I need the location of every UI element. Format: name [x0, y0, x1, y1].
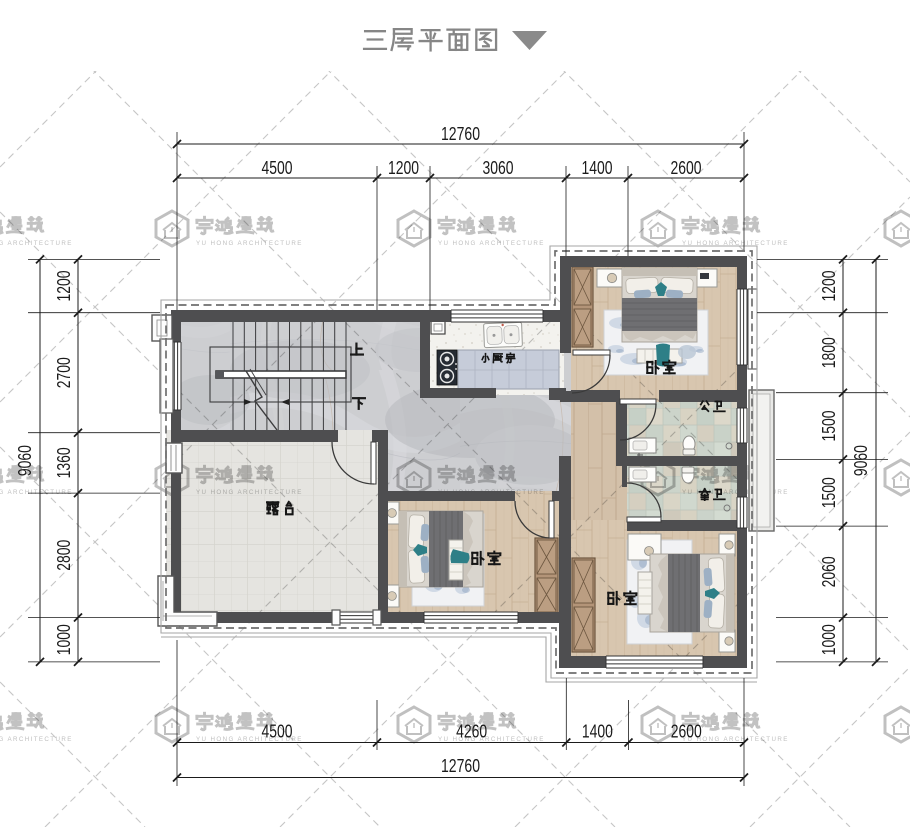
svg-text:1200: 1200: [388, 157, 419, 178]
svg-text:9060: 9060: [14, 445, 35, 476]
svg-text:1400: 1400: [582, 721, 613, 742]
svg-text:1000: 1000: [818, 624, 839, 655]
svg-text:1200: 1200: [818, 271, 839, 302]
svg-text:2700: 2700: [53, 357, 74, 388]
svg-text:YU HONG ARCHITECTURE: YU HONG ARCHITECTURE: [196, 489, 303, 496]
svg-text:YU HONG ARCHITECTURE: YU HONG ARCHITECTURE: [0, 489, 73, 496]
svg-text:YU HONG ARCHITECTURE: YU HONG ARCHITECTURE: [0, 240, 73, 247]
svg-text:2600: 2600: [671, 157, 702, 178]
svg-text:2060: 2060: [818, 556, 839, 587]
svg-text:YU HONG ARCHITECTURE: YU HONG ARCHITECTURE: [196, 240, 303, 247]
svg-text:1000: 1000: [53, 624, 74, 655]
svg-text:YU HONG ARCHITECTURE: YU HONG ARCHITECTURE: [438, 240, 545, 247]
svg-text:1800: 1800: [818, 337, 839, 368]
svg-text:4500: 4500: [262, 721, 293, 742]
svg-text:YU HONG ARCHITECTURE: YU HONG ARCHITECTURE: [0, 736, 73, 743]
svg-text:1400: 1400: [582, 157, 613, 178]
svg-text:12760: 12760: [441, 123, 480, 144]
svg-text:12760: 12760: [441, 755, 480, 776]
svg-text:4260: 4260: [456, 721, 487, 742]
svg-text:1500: 1500: [818, 477, 839, 508]
svg-text:YU HONG ARCHITECTURE: YU HONG ARCHITECTURE: [438, 736, 545, 743]
svg-text:1500: 1500: [818, 411, 839, 442]
svg-text:2600: 2600: [671, 721, 702, 742]
svg-text:3060: 3060: [483, 157, 514, 178]
svg-text:2800: 2800: [53, 540, 74, 571]
svg-text:1200: 1200: [53, 271, 74, 302]
svg-text:4500: 4500: [262, 157, 293, 178]
svg-text:1360: 1360: [53, 447, 74, 478]
svg-text:9060: 9060: [850, 445, 871, 476]
